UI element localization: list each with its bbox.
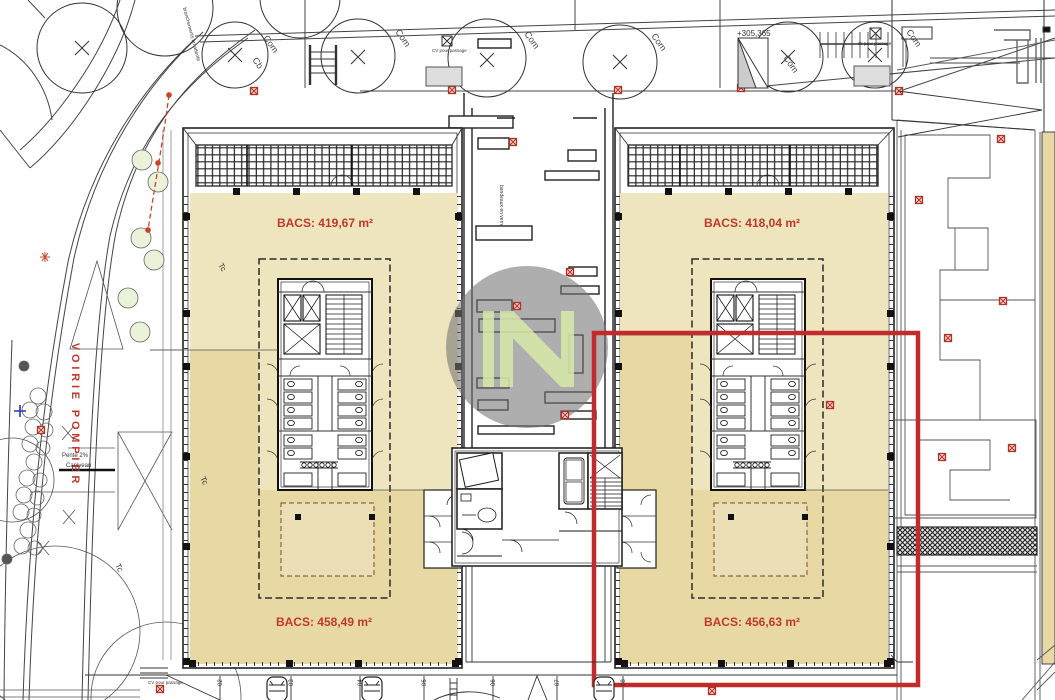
svg-text:BACS: 419,67 m²: BACS: 419,67 m²	[277, 216, 373, 230]
svg-text:06: 06	[491, 679, 497, 686]
svg-text:+305,365: +305,365	[737, 29, 771, 38]
svg-text:05: 05	[422, 679, 428, 686]
svg-text:Caniveau: Caniveau	[66, 463, 91, 469]
svg-text:Cr pour passage: Cr pour passage	[858, 41, 892, 46]
svg-text:02: 02	[218, 679, 224, 686]
svg-text:03: 03	[289, 679, 295, 686]
svg-text:Pente 2%: Pente 2%	[62, 453, 89, 459]
svg-text:07: 07	[555, 679, 561, 686]
svg-text:bandeaux en verre: bandeaux en verre	[498, 185, 504, 227]
svg-text:BACS: 458,49 m²: BACS: 458,49 m²	[276, 615, 372, 629]
svg-text:08: 08	[621, 679, 627, 686]
svg-text:CV pour passage: CV pour passage	[148, 680, 183, 685]
svg-text:CV pour passage: CV pour passage	[432, 48, 467, 53]
svg-text:BACS: 418,04 m²: BACS: 418,04 m²	[704, 216, 800, 230]
svg-text:BACS: 456,63 m²: BACS: 456,63 m²	[704, 615, 800, 629]
svg-text:04: 04	[358, 679, 364, 686]
